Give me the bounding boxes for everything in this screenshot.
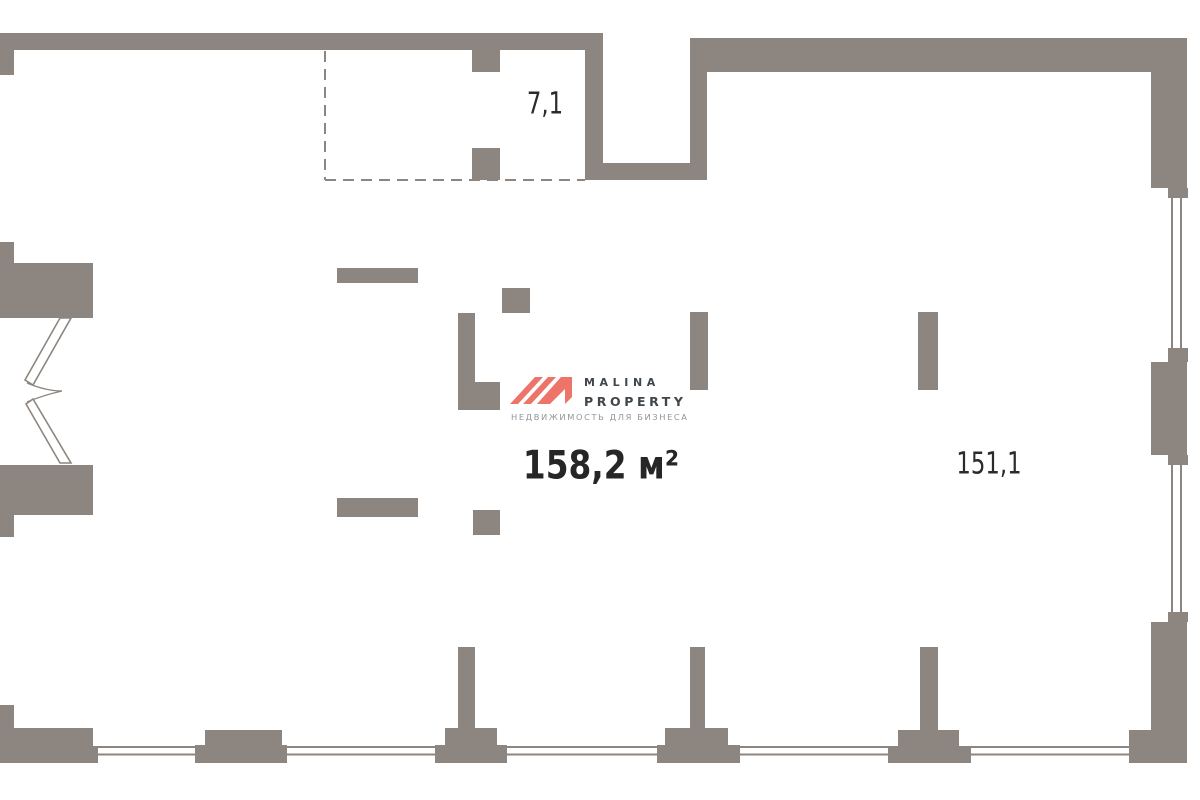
interior-wall <box>475 382 500 410</box>
wall-jamb <box>1168 188 1188 198</box>
column <box>458 647 475 728</box>
floor-plan: 7,1 158,2 м² 151,1 MALINA PROPERTY НЕДВИ… <box>0 0 1200 800</box>
malina-property-logo: MALINA PROPERTY НЕДВИЖИМОСТЬ ДЛЯ БИЗНЕСА <box>509 374 709 426</box>
wall-stub <box>0 242 14 263</box>
wall-bottom-pier <box>657 745 740 763</box>
wall-right-pier <box>1151 72 1187 188</box>
wall-bottom-pier <box>195 745 287 763</box>
interior-wall <box>337 498 418 517</box>
wall-jamb <box>1168 612 1188 622</box>
wall-bottom-pier <box>445 728 497 745</box>
wall-right-pier <box>1151 622 1187 763</box>
interior-wall <box>918 312 938 390</box>
column <box>920 647 938 730</box>
casement-window-icon <box>25 318 71 463</box>
column <box>690 647 705 728</box>
wall-stub <box>472 50 500 72</box>
wall-stub <box>472 148 500 180</box>
logo-tagline: НЕДВИЖИМОСТЬ ДЛЯ БИЗНЕСА <box>511 412 689 422</box>
wall-corner-step <box>1129 730 1151 763</box>
wall-notch-bottom <box>585 163 707 180</box>
wall-top-right <box>690 38 1187 72</box>
column <box>502 288 530 313</box>
wall-bottom-pier <box>205 730 282 745</box>
wall-left-pier <box>0 263 93 318</box>
area-label-right-room: 151,1 <box>956 447 1021 482</box>
interior-wall <box>337 268 418 283</box>
interior-wall <box>458 313 475 410</box>
wall-bottom-pier <box>898 730 959 746</box>
wall-jamb <box>1168 455 1188 465</box>
casement-sash <box>25 318 71 385</box>
wall-bottom-corner <box>0 728 93 746</box>
wall-bottom-pier <box>888 746 971 763</box>
wall-stub <box>0 515 14 537</box>
wall-bottom-pier <box>665 728 728 745</box>
casement-sash <box>26 399 71 463</box>
wall-jamb <box>1168 348 1188 362</box>
logo-brand-type: PROPERTY <box>584 394 687 409</box>
wall-top-left <box>0 33 603 50</box>
logo-brand-name: MALINA <box>584 376 660 389</box>
wall-stub <box>0 50 14 75</box>
wall-stub <box>0 705 14 728</box>
column <box>473 510 500 535</box>
wall-annex-right <box>585 50 603 180</box>
area-label-annex: 7,1 <box>527 87 563 122</box>
wall-right-pier <box>1151 362 1187 455</box>
wall-bottom-corner <box>0 746 98 763</box>
wall-left-pier <box>0 465 93 515</box>
wall-bottom-pier <box>435 745 507 763</box>
logo-m-icon <box>509 374 573 405</box>
area-label-main: 158,2 м² <box>523 444 679 489</box>
